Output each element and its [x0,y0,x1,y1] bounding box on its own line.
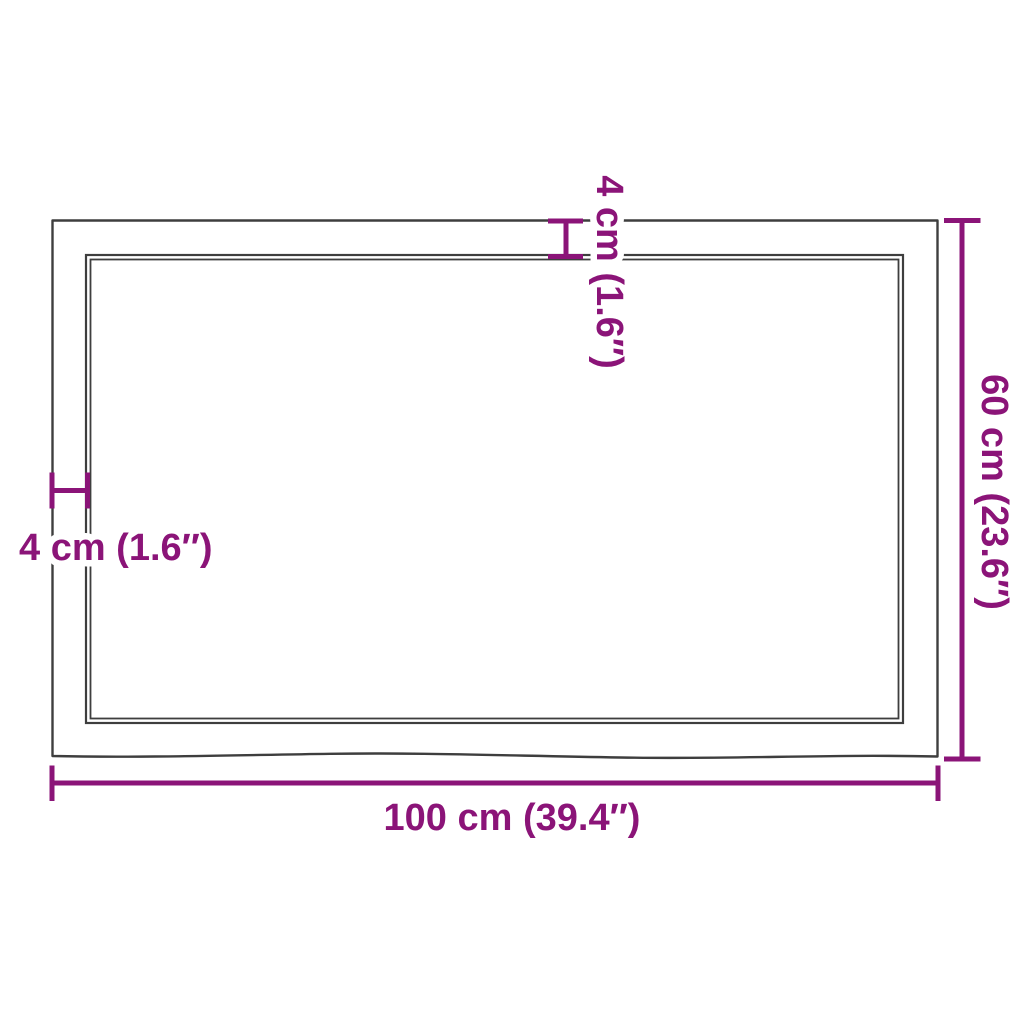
tabletop-outline [53,221,938,758]
width-label: 100 cm (39.4″) [384,797,641,839]
thickness-left-label: 4 cm (1.6″) [19,527,213,569]
width-dimension [52,766,938,802]
dimension-diagram-page: 100 cm (39.4″) 60 cm (23.6″) 4 cm (1.6″)… [0,0,1024,1024]
dimension-diagram: 100 cm (39.4″) 60 cm (23.6″) 4 cm (1.6″)… [0,0,1024,1024]
thickness-top-label: 4 cm (1.6″) [588,175,630,369]
height-label: 60 cm (23.6″) [973,374,1015,610]
